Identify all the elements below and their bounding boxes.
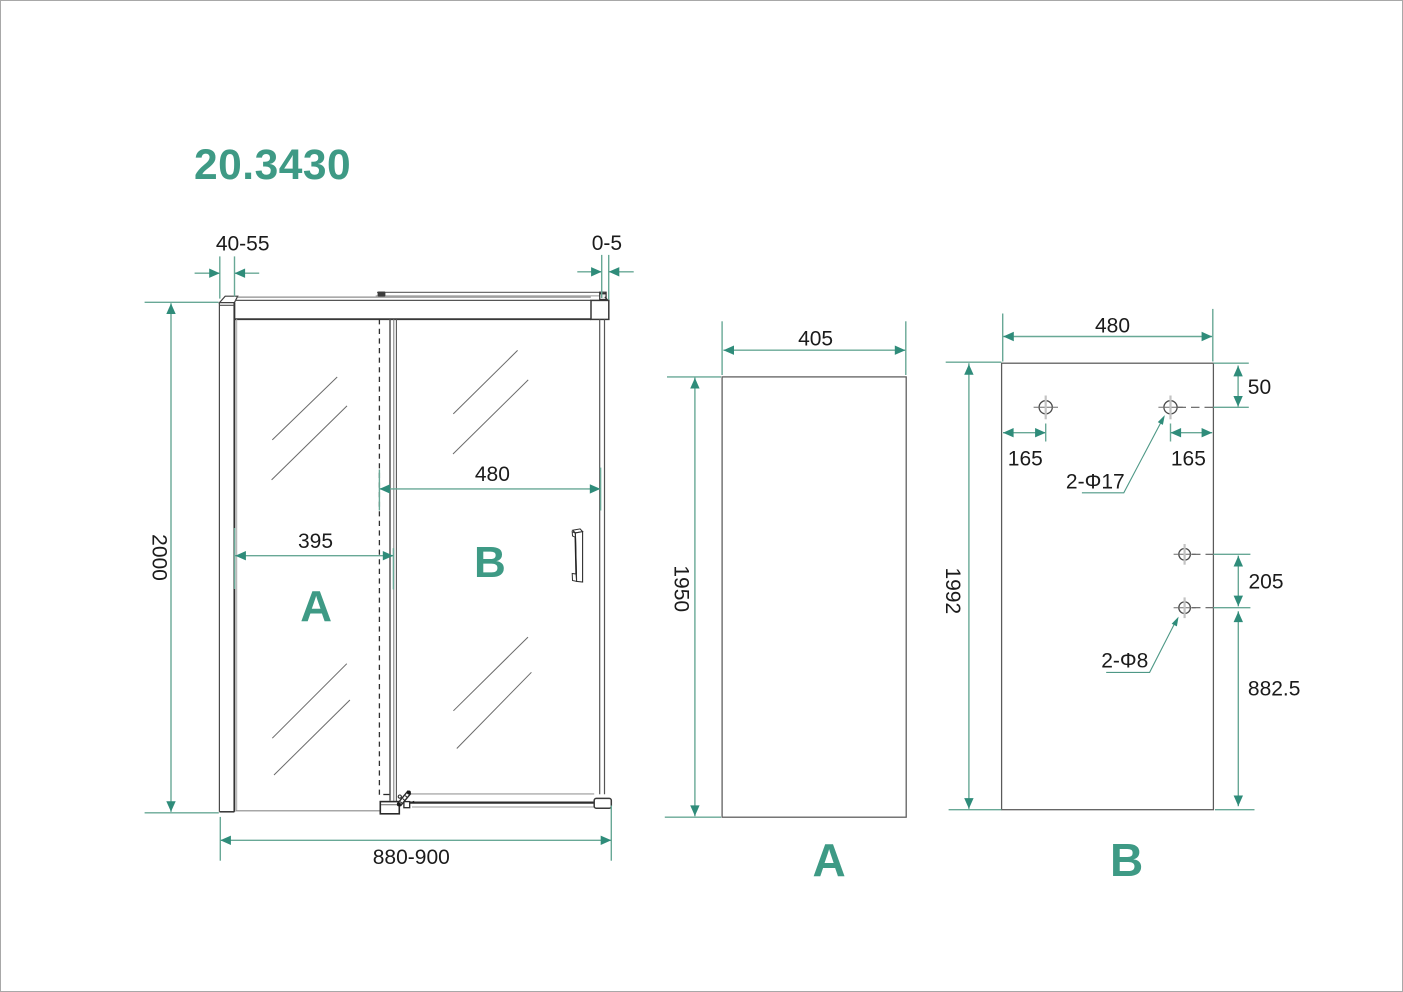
svg-text:2-Φ8: 2-Φ8 [1101,649,1148,672]
svg-text:165: 165 [1008,448,1043,471]
svg-text:2000: 2000 [148,534,171,581]
svg-text:205: 205 [1249,571,1284,594]
svg-text:165: 165 [1171,448,1206,471]
svg-text:1950: 1950 [669,565,692,612]
svg-text:882.5: 882.5 [1248,678,1301,701]
svg-text:B: B [1110,834,1143,886]
svg-text:480: 480 [1095,315,1130,338]
svg-text:40-55: 40-55 [216,232,270,255]
svg-text:0-5: 0-5 [592,232,622,255]
svg-text:A: A [300,582,332,631]
svg-text:480: 480 [475,463,510,486]
svg-text:2-Φ17: 2-Φ17 [1066,470,1125,493]
svg-text:B: B [474,538,506,587]
svg-text:395: 395 [298,530,333,553]
svg-text:1992: 1992 [941,567,964,614]
svg-text:50: 50 [1248,376,1271,399]
svg-text:880-900: 880-900 [373,846,450,869]
svg-text:20.3430: 20.3430 [194,142,351,189]
svg-text:405: 405 [798,327,833,350]
svg-text:A: A [812,834,845,886]
